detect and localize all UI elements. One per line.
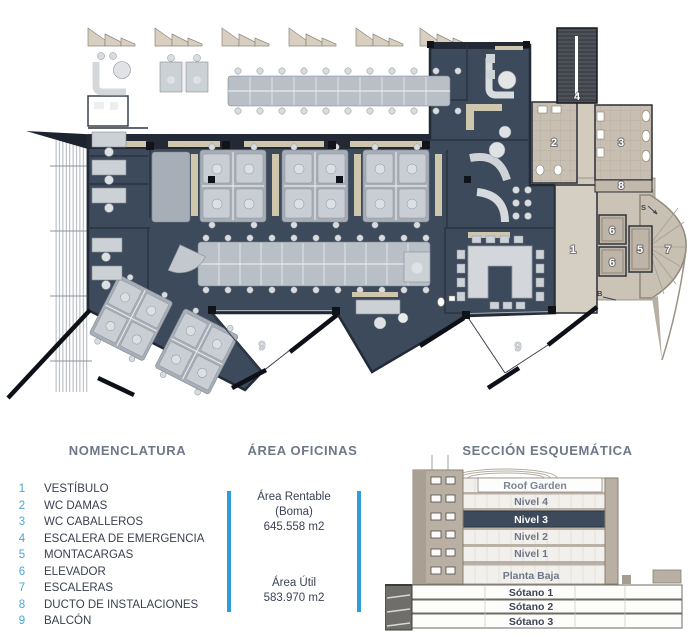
item-number: 9 (14, 613, 30, 630)
util-label: Área Útil (233, 576, 355, 591)
list-item: 1VESTÍBULO (14, 481, 234, 498)
section-right-column (605, 478, 618, 584)
room-label-wc-caballeros: 3 (618, 137, 624, 149)
pod-band (152, 144, 442, 228)
balcony-label-2: 9 (515, 340, 522, 354)
building-section-drawing: Roof Garden Nivel 4 Nivel 3 Nivel 2 Nive… (385, 455, 697, 643)
balcony-label-1: 9 (259, 339, 266, 353)
level-planta-baja: Planta Baja (503, 570, 560, 582)
legend-title: NOMENCLATURA (20, 443, 235, 458)
section-left-tower (413, 470, 463, 584)
plan-area-label: ÁREA OFICINAS (260, 122, 376, 137)
room-label-ducto: 8 (618, 180, 624, 192)
section-pillar (622, 575, 631, 584)
basement-ramp (385, 585, 412, 630)
room-label-escaleras: 7 (665, 244, 671, 256)
list-item: 5MONTACARGAS (14, 547, 234, 564)
item-number: 2 (14, 498, 30, 515)
room-label-montacargas: 5 (637, 244, 643, 256)
nomenclature-list: 1VESTÍBULO 2WC DAMAS 3WC CABALLEROS 4ESC… (14, 481, 234, 630)
item-number: 5 (14, 547, 30, 564)
item-label: ESCALERAS (30, 580, 113, 597)
bench-exec-desk (404, 252, 430, 282)
item-label: WC CABALLEROS (30, 514, 143, 531)
level-sotano2: Sótano 2 (509, 601, 553, 613)
roof-awnings (88, 28, 467, 46)
list-item: 8DUCTO DE INSTALACIONES (14, 597, 234, 614)
room-label-wc-damas: 2 (551, 137, 557, 149)
item-label: VESTÍBULO (30, 481, 109, 498)
bench-top (228, 68, 461, 114)
stair-down-annotation: B (597, 289, 603, 298)
stair-up-annotation: S (641, 203, 646, 212)
level-nivel4: Nivel 4 (514, 496, 548, 508)
item-label: WC DAMAS (30, 498, 107, 515)
room-label-elevador-a: 6 (609, 225, 615, 237)
list-item: 4ESCALERA DE EMERGENCIA (14, 531, 234, 548)
floor-plan-sheet: ÁREA OFICINAS 1 2 3 4 5 6 6 7 8 9 9 S B … (0, 0, 697, 643)
item-number: 4 (14, 531, 30, 548)
desk-pair (160, 55, 208, 93)
area-panel-left-bar (227, 491, 231, 612)
list-item: 7ESCALERAS (14, 580, 234, 597)
rentable-sub: (Boma) (233, 505, 355, 520)
item-label: MONTACARGAS (30, 547, 133, 564)
curtainwall-sliver (652, 296, 662, 360)
item-label: ESCALERA DE EMERGENCIA (30, 531, 204, 548)
room-label-escalera-emergencia: 4 (574, 91, 581, 103)
list-item: 6ELEVADOR (14, 564, 234, 581)
util-value: 583.970 m2 (233, 591, 355, 606)
floor-plan-drawing: ÁREA OFICINAS 1 2 3 4 5 6 6 7 8 9 9 S B (0, 0, 697, 440)
level-nivel1: Nivel 1 (514, 548, 548, 560)
rentable-value: 645.558 m2 (233, 520, 355, 535)
rentable-label: Área Rentable (233, 490, 355, 505)
item-label: ELEVADOR (30, 564, 106, 581)
level-nivel2: Nivel 2 (514, 531, 548, 543)
area-panel-right-bar (357, 491, 361, 612)
list-item: 3WC CABALLEROS (14, 514, 234, 531)
item-label: DUCTO DE INSTALACIONES (30, 597, 198, 614)
list-item: 2WC DAMAS (14, 498, 234, 515)
item-number: 6 (14, 564, 30, 581)
level-sotano1: Sótano 1 (509, 587, 553, 599)
level-sotano3: Sótano 3 (509, 616, 553, 628)
item-number: 1 (14, 481, 30, 498)
list-item: 9BALCÓN (14, 613, 234, 630)
item-number: 3 (14, 514, 30, 531)
section-parapet (653, 570, 681, 583)
level-nivel3: Nivel 3 (514, 514, 548, 526)
spacer (233, 535, 355, 576)
reception (94, 53, 131, 111)
room-label-vestibulo: 1 (570, 244, 576, 256)
area-figures: Área Rentable (Boma) 645.558 m2 Área Úti… (233, 490, 355, 606)
item-label: BALCÓN (30, 613, 91, 630)
core-corridor (577, 100, 595, 185)
area-panel-title: ÁREA OFICINAS (240, 443, 365, 458)
item-number: 8 (14, 597, 30, 614)
bench-low (168, 235, 430, 293)
room-label-elevador-b: 6 (609, 257, 615, 269)
wing-divider-sill-2 (466, 104, 474, 130)
level-roof-garden: Roof Garden (503, 480, 567, 492)
item-number: 7 (14, 580, 30, 597)
roof-dome (453, 469, 557, 478)
